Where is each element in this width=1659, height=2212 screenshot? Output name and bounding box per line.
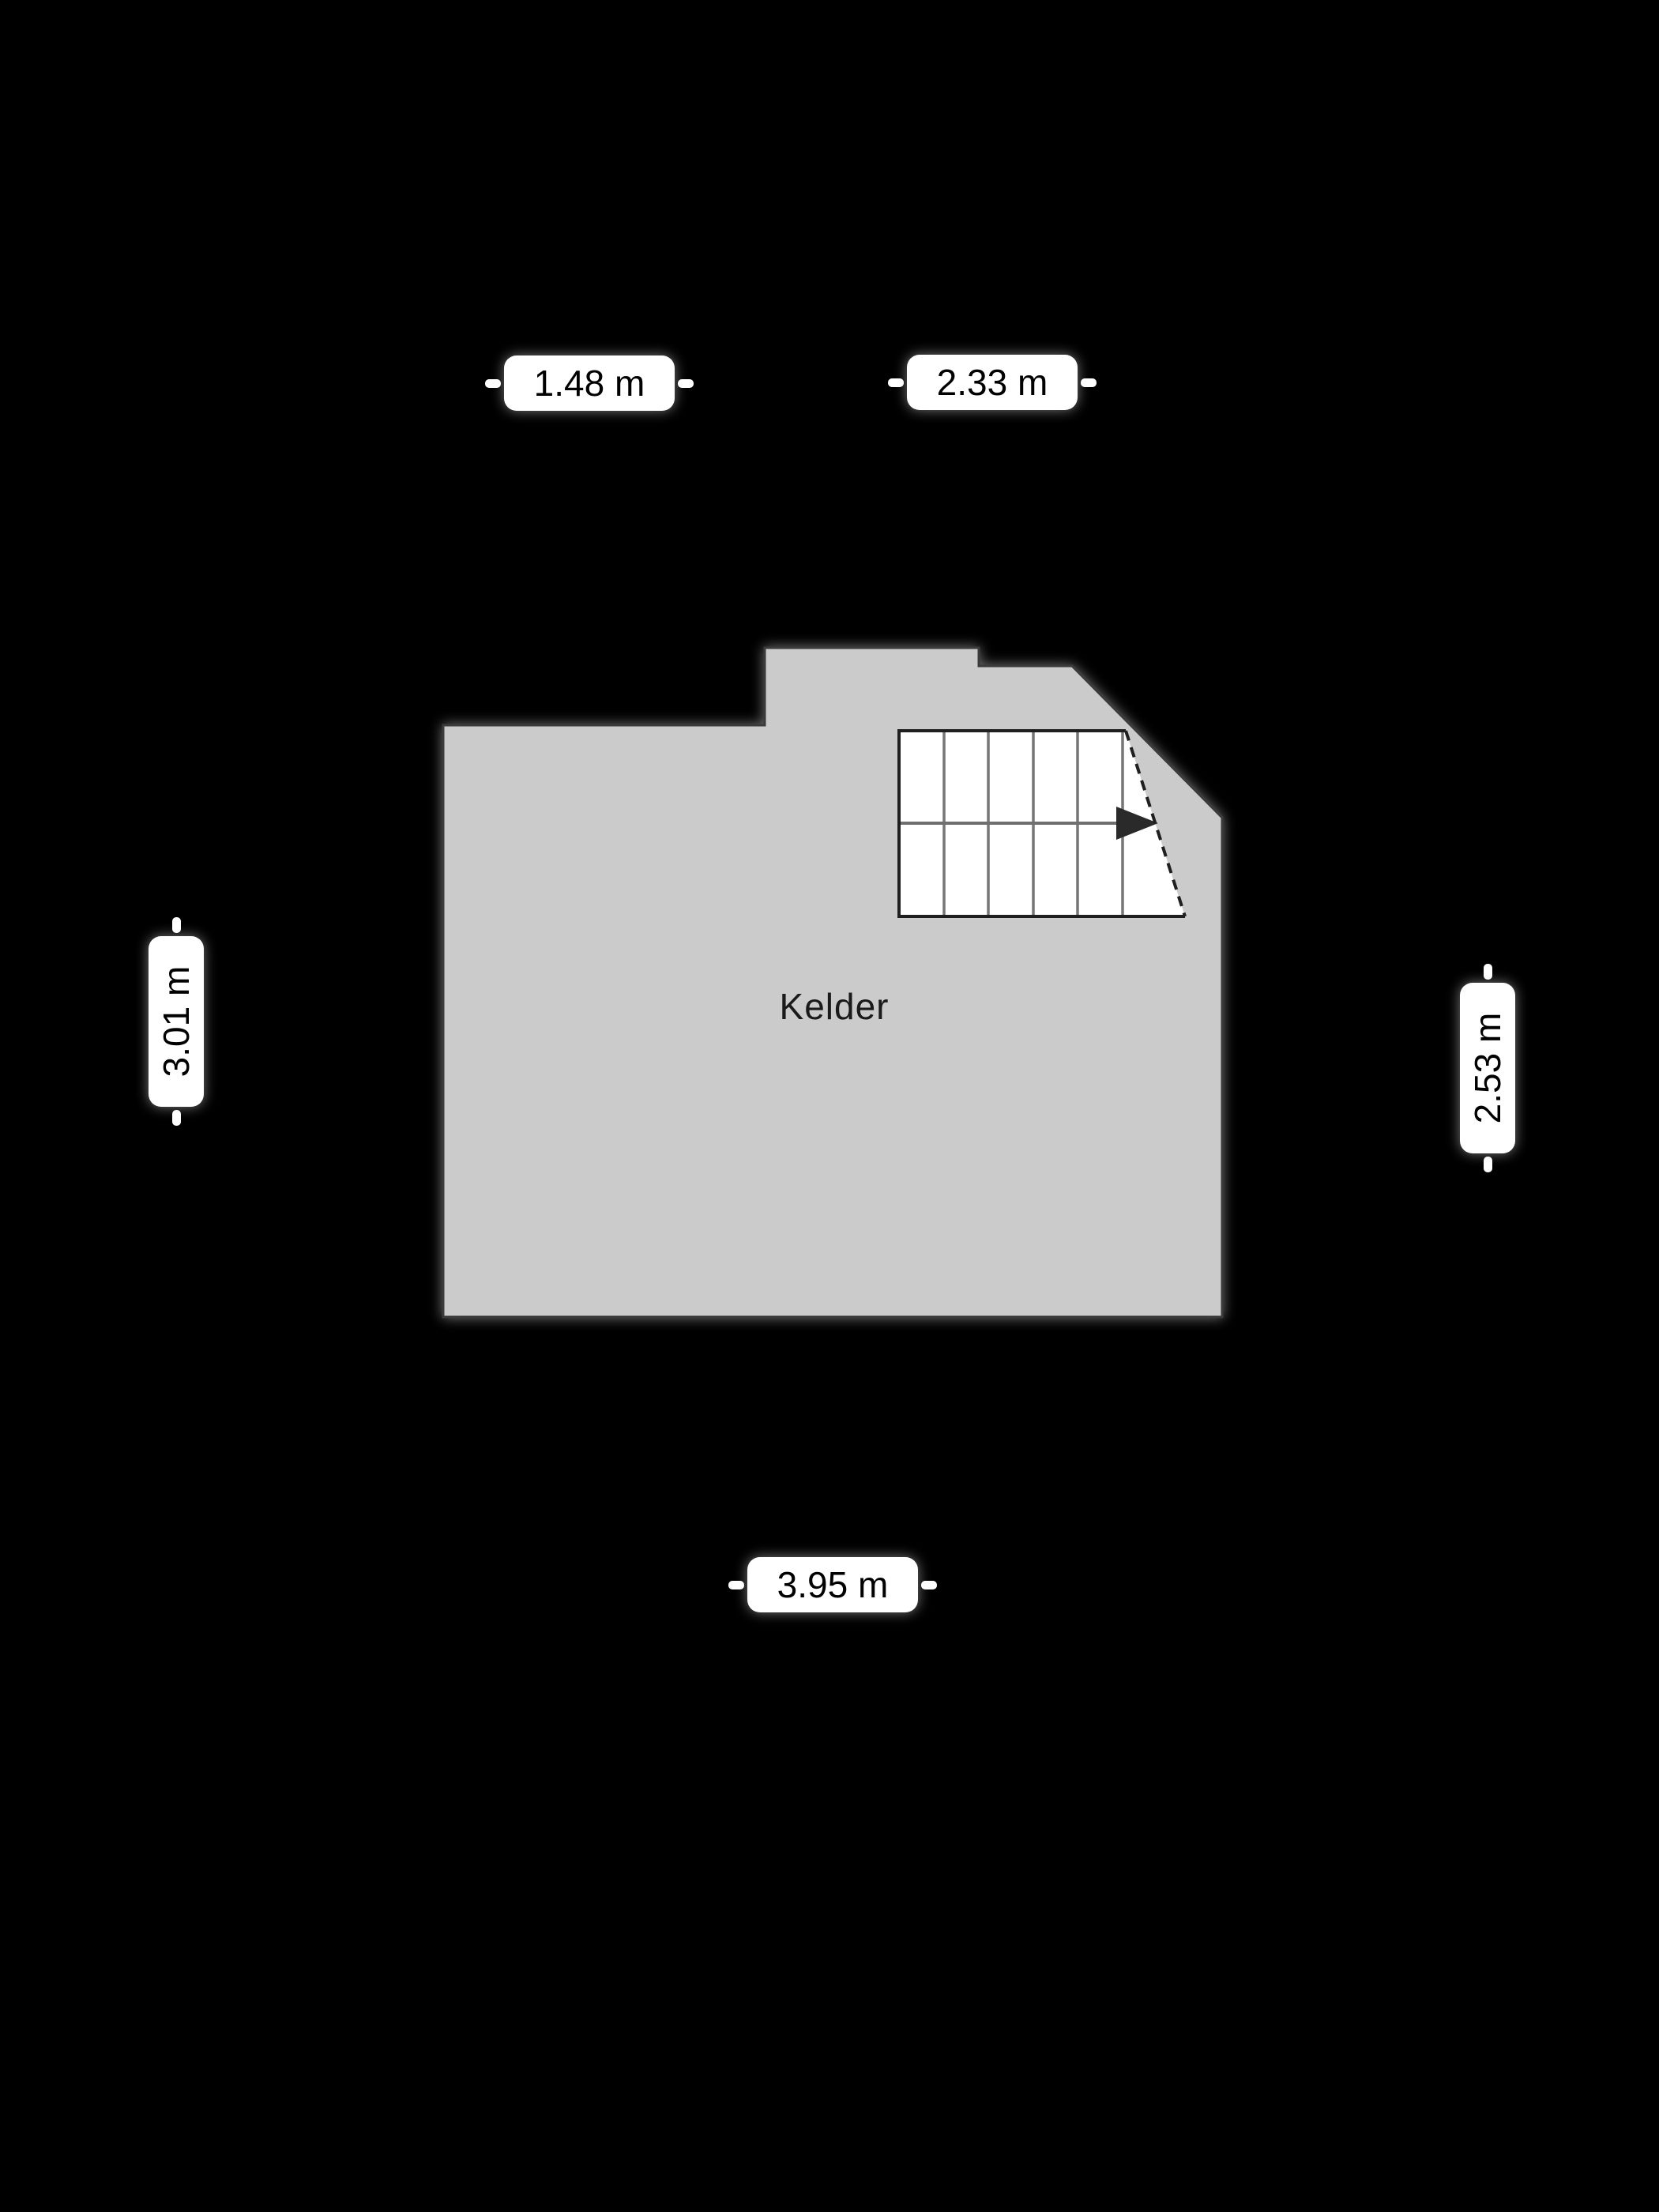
dimension-label-left: 3.01 m bbox=[149, 936, 204, 1107]
floorplan-drawing bbox=[0, 0, 1659, 2212]
dimension-label-right: 2.53 m bbox=[1460, 983, 1515, 1153]
dimension-label-top-right: 2.33 m bbox=[907, 355, 1078, 410]
dimension-label-top-left: 1.48 m bbox=[504, 355, 675, 411]
room-label: Kelder bbox=[780, 985, 890, 1028]
floorplan-canvas: 1.48 m 2.33 m 3.01 m 2.53 m 3.95 m Kelde… bbox=[0, 0, 1659, 2212]
dimension-label-bottom: 3.95 m bbox=[747, 1557, 918, 1612]
